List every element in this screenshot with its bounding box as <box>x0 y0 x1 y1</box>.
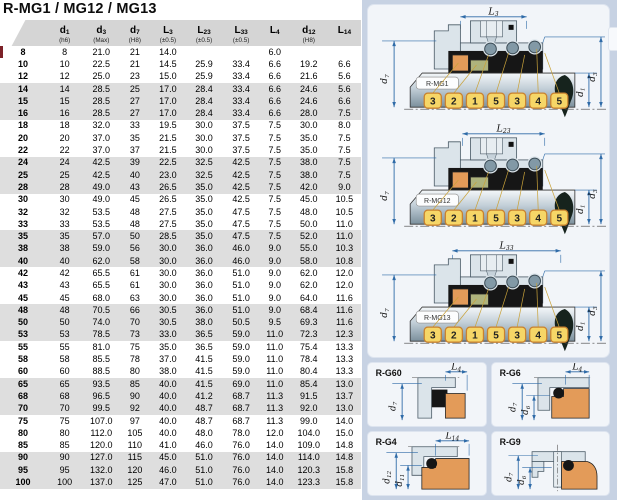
table-row: 181832.03319.530.037.57.530.08.0 <box>0 120 361 132</box>
cell: 59.0 <box>223 366 260 378</box>
cell: 7.5 <box>260 132 290 144</box>
table-row: 9090127.011545.051.076.014.0114.014.8 <box>0 452 361 464</box>
table-row: 202037.03521.530.037.57.535.07.5 <box>0 132 361 144</box>
cell: 33.4 <box>223 71 260 83</box>
svg-text:3: 3 <box>514 214 520 225</box>
callout-badge: 2 <box>445 327 462 342</box>
row-label: 15 <box>0 95 46 107</box>
cell: 40.0 <box>150 403 185 415</box>
cell: 45.0 <box>290 194 328 206</box>
column-header-d1: d1(h6) <box>46 20 83 46</box>
cell: 14.5 <box>150 58 185 70</box>
cell: 6.0 <box>260 46 290 58</box>
table-row: 323253.54827.535.047.57.548.010.5 <box>0 206 361 218</box>
cell: 33.4 <box>223 95 260 107</box>
cell: 33.4 <box>223 83 260 95</box>
cell: 51.0 <box>185 452 222 464</box>
cell: 28.4 <box>185 95 222 107</box>
cell: 21.5 <box>150 132 185 144</box>
row-label: 100 <box>0 476 46 488</box>
table-row: 707099.59240.048.768.711.392.013.0 <box>0 403 361 415</box>
cell: 107.0 <box>83 415 119 427</box>
row-label: 85 <box>0 440 46 452</box>
cell: 42.5 <box>83 169 119 181</box>
table-row: 535378.57333.036.559.011.072.312.3 <box>0 329 361 341</box>
cell: 12 <box>46 71 83 83</box>
cell: 59.0 <box>223 341 260 353</box>
cell: 32.0 <box>83 120 119 132</box>
cell: 80 <box>46 427 83 439</box>
cell: 51.0 <box>185 464 222 476</box>
cell: 81.0 <box>83 341 119 353</box>
table-row: 424265.56130.036.051.09.062.012.0 <box>0 267 361 279</box>
cell: 76.0 <box>223 476 260 488</box>
diagram-panel: L3R-MG13215345d7d1d3 L23R-MG123215345d7d… <box>362 0 617 500</box>
cell: 15.0 <box>328 427 361 439</box>
cell: 15.0 <box>150 71 185 83</box>
cell: 35.0 <box>185 206 222 218</box>
cell: 16 <box>46 107 83 119</box>
cell: 6.6 <box>260 71 290 83</box>
table-row: 606088.58038.041.559.011.080.413.3 <box>0 366 361 378</box>
diagram-label: R-MG1 <box>426 81 449 88</box>
cell: 35.0 <box>185 194 222 206</box>
cell: 38.0 <box>290 169 328 181</box>
cell: 47.5 <box>223 218 260 230</box>
cell: 68.4 <box>290 304 328 316</box>
cell: 35 <box>119 132 150 144</box>
cell: 35.0 <box>185 181 222 193</box>
cell: 45 <box>119 194 150 206</box>
cell: 21.6 <box>290 71 328 83</box>
cell: 11.0 <box>328 218 361 230</box>
cell: 49.0 <box>83 181 119 193</box>
seal-diagram-r-mg1: L3R-MG13215345d7d1d3 <box>368 6 609 122</box>
cell: 7.5 <box>260 157 290 169</box>
cell: 28.4 <box>185 83 222 95</box>
cell <box>185 46 222 58</box>
callout-badge: 4 <box>530 210 547 225</box>
seat-card-r-g9: d7d6R-G9 <box>491 431 611 496</box>
table-row: 353557.05028.535.047.57.552.011.0 <box>0 230 361 242</box>
cell: 13.3 <box>328 366 361 378</box>
column-header-d12: d12(H8) <box>290 20 328 46</box>
cell: 7.5 <box>328 157 361 169</box>
cell: 36.0 <box>185 280 222 292</box>
callout-badge: 3 <box>424 327 441 342</box>
cell: 30.0 <box>185 120 222 132</box>
cell: 7.5 <box>260 194 290 206</box>
cell: 61 <box>119 280 150 292</box>
cell: 65.5 <box>83 267 119 279</box>
dim-label-d6: d6 <box>517 475 528 485</box>
dimension-table-section: R-MG1 / MG12 / MG13 d1(h6)d3(Max)d7(H8)L… <box>0 0 362 500</box>
cell: 27.5 <box>150 206 185 218</box>
svg-text:3: 3 <box>430 214 436 225</box>
cell: 6.6 <box>260 107 290 119</box>
cell: 132.0 <box>83 464 119 476</box>
cell: 30.5 <box>150 304 185 316</box>
cell: 62.0 <box>83 255 119 267</box>
cell: 12.3 <box>328 329 361 341</box>
cell: 22 <box>46 144 83 156</box>
cell: 38 <box>46 243 83 255</box>
dim-label-d7: d7 <box>380 191 391 201</box>
cell: 36.0 <box>185 243 222 255</box>
seat-card-r-g6: L4d7d6R-G6 <box>491 362 611 427</box>
cell: 90 <box>46 452 83 464</box>
cell: 69.0 <box>223 378 260 390</box>
cell: 38.0 <box>150 366 185 378</box>
cell: 11.6 <box>328 292 361 304</box>
cell: 51.0 <box>223 280 260 292</box>
cell: 10.5 <box>328 206 361 218</box>
cell: 48 <box>46 304 83 316</box>
cell: 48.0 <box>185 427 222 439</box>
row-label: 33 <box>0 218 46 230</box>
cell: 75 <box>119 341 150 353</box>
cell: 92.0 <box>290 403 328 415</box>
cell: 20 <box>46 132 83 144</box>
dim-label-d3: d3 <box>588 306 599 316</box>
table-row: 303049.04526.535.042.57.545.010.5 <box>0 194 361 206</box>
svg-text:5: 5 <box>556 214 562 225</box>
cell: 6.6 <box>328 58 361 70</box>
cell: 68.7 <box>223 403 260 415</box>
cell: 32.5 <box>185 157 222 169</box>
dim-label-d7: d7 <box>504 472 515 482</box>
table-row: 101022.52114.525.933.46.619.26.6 <box>0 58 361 70</box>
cell: 7.5 <box>260 144 290 156</box>
cell: 51.0 <box>223 267 260 279</box>
row-label: 50 <box>0 317 46 329</box>
cell: 9.0 <box>260 280 290 292</box>
cell: 69.3 <box>290 317 328 329</box>
cell: 88.5 <box>83 366 119 378</box>
column-header-L33: L33(±0.5) <box>223 20 260 46</box>
diagram-label: R-MG12 <box>424 198 451 205</box>
cell: 51.0 <box>223 292 260 304</box>
svg-text:4: 4 <box>535 214 541 225</box>
table-row: 252542.54023.032.542.57.538.07.5 <box>0 169 361 181</box>
cell: 24.6 <box>290 95 328 107</box>
table-row: 454568.06330.036.051.09.064.011.6 <box>0 292 361 304</box>
table-row: 282849.04326.535.042.57.542.09.0 <box>0 181 361 193</box>
cell: 11.0 <box>260 353 290 365</box>
cell: 25.9 <box>185 71 222 83</box>
row-label: 12 <box>0 71 46 83</box>
dim-label-d1: d1 <box>576 87 587 96</box>
cell: 32.5 <box>185 169 222 181</box>
cell: 28 <box>46 181 83 193</box>
cell: 85 <box>119 378 150 390</box>
cell: 40.0 <box>150 415 185 427</box>
column-header-L4: L4 <box>260 20 290 46</box>
cell: 15.8 <box>328 464 361 476</box>
cell: 120.3 <box>290 464 328 476</box>
cell: 76.0 <box>223 440 260 452</box>
cell: 14.0 <box>150 46 185 58</box>
svg-text:1: 1 <box>472 97 478 108</box>
cell: 70 <box>46 403 83 415</box>
seal-diagrams-card: L3R-MG13215345d7d1d3 L23R-MG123215345d7d… <box>367 4 610 358</box>
seal-diagram-r-mg12: L23R-MG123215345d7d1d3 <box>368 123 609 239</box>
cell: 46.0 <box>223 243 260 255</box>
svg-text:3: 3 <box>514 331 520 342</box>
table-row: 9595132.012046.051.076.014.0120.315.8 <box>0 464 361 476</box>
table-row: 8080112.010540.048.078.012.0104.015.0 <box>0 427 361 439</box>
cell: 99.0 <box>290 415 328 427</box>
cell: 50.0 <box>290 218 328 230</box>
cell: 68 <box>46 390 83 402</box>
cell: 30.0 <box>150 255 185 267</box>
cell: 80 <box>119 366 150 378</box>
cell: 21.5 <box>150 144 185 156</box>
dim-label-L33: L33 <box>499 240 514 252</box>
row-label: 35 <box>0 230 46 242</box>
cell: 7.5 <box>328 169 361 181</box>
seat-card-r-g4: L14d12d11R-G4 <box>367 431 487 496</box>
callout-badge: 1 <box>466 210 483 225</box>
cell: 9.5 <box>260 317 290 329</box>
cell: 7.5 <box>260 206 290 218</box>
cell <box>223 46 260 58</box>
cell: 18 <box>46 120 83 132</box>
cell: 24 <box>46 157 83 169</box>
row-label: 58 <box>0 353 46 365</box>
row-label: 16 <box>0 107 46 119</box>
cell: 33 <box>46 218 83 230</box>
cell: 6.6 <box>260 83 290 95</box>
cell: 21.0 <box>83 46 119 58</box>
cell: 13.0 <box>328 403 361 415</box>
cell: 7.5 <box>260 120 290 132</box>
cell: 42.5 <box>223 169 260 181</box>
dim-label-d11: d11 <box>395 474 406 487</box>
table-row: 242442.53922.532.542.57.538.07.5 <box>0 157 361 169</box>
cell: 14.8 <box>328 440 361 452</box>
seal-diagram-r-mg13: L33R-MG133215345d7d1d3 <box>368 240 609 356</box>
svg-text:2: 2 <box>451 97 457 108</box>
column-header-L14: L14 <box>328 20 361 46</box>
cell: 30.5 <box>150 317 185 329</box>
cell: 33.0 <box>150 329 185 341</box>
cell: 109.0 <box>290 440 328 452</box>
dim-label-d3: d3 <box>588 72 599 82</box>
cell: 11.3 <box>260 403 290 415</box>
table-row: 333353.54827.535.047.57.550.011.0 <box>0 218 361 230</box>
cell: 48 <box>119 218 150 230</box>
row-label: 24 <box>0 157 46 169</box>
svg-text:3: 3 <box>514 97 520 108</box>
cell: 32 <box>46 206 83 218</box>
cell: 70.5 <box>83 304 119 316</box>
row-label: 10 <box>0 58 46 70</box>
cell: 30.0 <box>185 132 222 144</box>
row-label: 68 <box>0 390 46 402</box>
dim-label-L4: L4 <box>571 363 582 373</box>
cell: 57.0 <box>83 230 119 242</box>
cell: 35 <box>46 230 83 242</box>
cell: 40.0 <box>150 378 185 390</box>
dim-label-d1: d1 <box>576 204 587 213</box>
cell: 9.0 <box>260 304 290 316</box>
callout-badge: 5 <box>551 327 568 342</box>
cell: 27 <box>119 107 150 119</box>
row-label: 80 <box>0 427 46 439</box>
cell: 114.0 <box>290 452 328 464</box>
cell: 112.0 <box>83 427 119 439</box>
cell: 24.6 <box>290 83 328 95</box>
row-label: 65 <box>0 378 46 390</box>
row-label: 22 <box>0 144 46 156</box>
cell: 14.0 <box>260 440 290 452</box>
row-label: 14 <box>0 83 46 95</box>
svg-text:2: 2 <box>451 331 457 342</box>
cell: 10 <box>46 58 83 70</box>
callout-badge: 3 <box>509 327 526 342</box>
cell: 42.5 <box>83 157 119 169</box>
cell: 23 <box>119 71 150 83</box>
cell: 42.5 <box>223 181 260 193</box>
cell: 7.5 <box>260 169 290 181</box>
callout-badge: 3 <box>424 210 441 225</box>
cell: 104.0 <box>290 427 328 439</box>
cell: 41.5 <box>185 353 222 365</box>
cell: 68.7 <box>223 415 260 427</box>
cell: 97 <box>119 415 150 427</box>
cell: 11.3 <box>260 415 290 427</box>
column-header-d7: d7(H8) <box>119 20 150 46</box>
callout-badge: 3 <box>509 210 526 225</box>
cell: 64.0 <box>290 292 328 304</box>
cell: 36.0 <box>185 267 222 279</box>
cell: 70 <box>119 317 150 329</box>
table-row: 8585120.011041.046.076.014.0109.014.8 <box>0 440 361 452</box>
cell: 75.4 <box>290 341 328 353</box>
cell: 42.5 <box>223 194 260 206</box>
cell: 80.4 <box>290 366 328 378</box>
cell: 92 <box>119 403 150 415</box>
cell: 59.0 <box>223 353 260 365</box>
cell: 61 <box>119 267 150 279</box>
cell: 65.5 <box>83 280 119 292</box>
cell: 13.0 <box>328 378 361 390</box>
cell: 59.0 <box>223 329 260 341</box>
table-row: 404062.05830.036.046.09.058.010.8 <box>0 255 361 267</box>
cell: 7.5 <box>260 218 290 230</box>
cell: 7.5 <box>260 181 290 193</box>
cell: 36.0 <box>185 255 222 267</box>
cell: 42 <box>46 267 83 279</box>
cell: 58 <box>46 353 83 365</box>
table-row: 585885.57837.041.559.011.078.413.3 <box>0 353 361 365</box>
svg-text:4: 4 <box>535 97 541 108</box>
seat-title: R-G4 <box>376 437 397 447</box>
cell: 35.0 <box>290 144 328 156</box>
cell: 21 <box>119 58 150 70</box>
callout-badge: 3 <box>424 93 441 108</box>
cell: 35.0 <box>150 341 185 353</box>
cell: 50.5 <box>223 317 260 329</box>
dim-label-L3: L3 <box>487 6 498 18</box>
seat-diagrams-grid: L4d7R-G60 L4d7d6R-G6 L14d12d11R-G4 d7d6R… <box>367 362 610 496</box>
dim-label-d7: d7 <box>380 74 391 84</box>
cell: 120.0 <box>83 440 119 452</box>
cell: 40.0 <box>150 390 185 402</box>
row-label: 43 <box>0 280 46 292</box>
cell: 47.5 <box>223 230 260 242</box>
cell: 95 <box>46 464 83 476</box>
cell: 47.0 <box>150 476 185 488</box>
callout-badge: 5 <box>487 93 504 108</box>
svg-text:5: 5 <box>493 214 499 225</box>
cell: 40.0 <box>150 427 185 439</box>
dimensions-table: d1(h6)d3(Max)d7(H8)L3(±0.5)L23(±0.5)L33(… <box>0 20 361 489</box>
callout-badge: 5 <box>551 93 568 108</box>
svg-text:5: 5 <box>556 331 562 342</box>
cell: 11.6 <box>328 304 361 316</box>
cell: 12.0 <box>328 267 361 279</box>
cell: 33.4 <box>223 58 260 70</box>
table-row: 656593.58540.041.569.011.085.413.0 <box>0 378 361 390</box>
cell: 47.5 <box>223 206 260 218</box>
cell: 73 <box>119 329 150 341</box>
cell: 42.0 <box>290 181 328 193</box>
row-label: 32 <box>0 206 46 218</box>
cell: 100 <box>46 476 83 488</box>
cell: 91.5 <box>290 390 328 402</box>
cell: 25.0 <box>83 71 119 83</box>
cell: 10.5 <box>328 194 361 206</box>
dim-label-d6: d6 <box>521 405 532 415</box>
dim-label-L23: L23 <box>496 123 511 135</box>
callout-badge: 4 <box>530 327 547 342</box>
callout-badge: 1 <box>466 93 483 108</box>
cell: 43 <box>46 280 83 292</box>
table-row: 505074.07030.538.050.59.569.311.6 <box>0 317 361 329</box>
cell: 11.6 <box>328 317 361 329</box>
row-label: 30 <box>0 194 46 206</box>
row-label: 48 <box>0 304 46 316</box>
cell: 22.5 <box>83 58 119 70</box>
cell: 14.0 <box>260 464 290 476</box>
seat-card-r-g60: L4d7R-G60 <box>367 362 487 427</box>
table-row: 8821.02114.06.0 <box>0 46 361 58</box>
table-row: 7575107.09740.048.768.711.399.014.0 <box>0 415 361 427</box>
cell: 23.0 <box>150 169 185 181</box>
callout-badge: 1 <box>466 327 483 342</box>
cell: 74.0 <box>83 317 119 329</box>
cell: 28.5 <box>150 230 185 242</box>
dim-label-d7: d7 <box>508 402 519 412</box>
cell: 46.0 <box>223 255 260 267</box>
cell: 6.6 <box>260 58 290 70</box>
seat-title: R-G6 <box>499 368 520 378</box>
cell: 14.0 <box>260 452 290 464</box>
dim-label-d12: d12 <box>382 470 393 483</box>
cell: 9.0 <box>260 255 290 267</box>
cell: 78.4 <box>290 353 328 365</box>
cell: 48.0 <box>290 206 328 218</box>
cell: 62.0 <box>290 267 328 279</box>
row-label: 40 <box>0 255 46 267</box>
cell: 41.5 <box>185 378 222 390</box>
cell: 22.5 <box>150 157 185 169</box>
cell: 27.5 <box>150 218 185 230</box>
cell: 11.0 <box>260 329 290 341</box>
cell: 58.0 <box>290 255 328 267</box>
